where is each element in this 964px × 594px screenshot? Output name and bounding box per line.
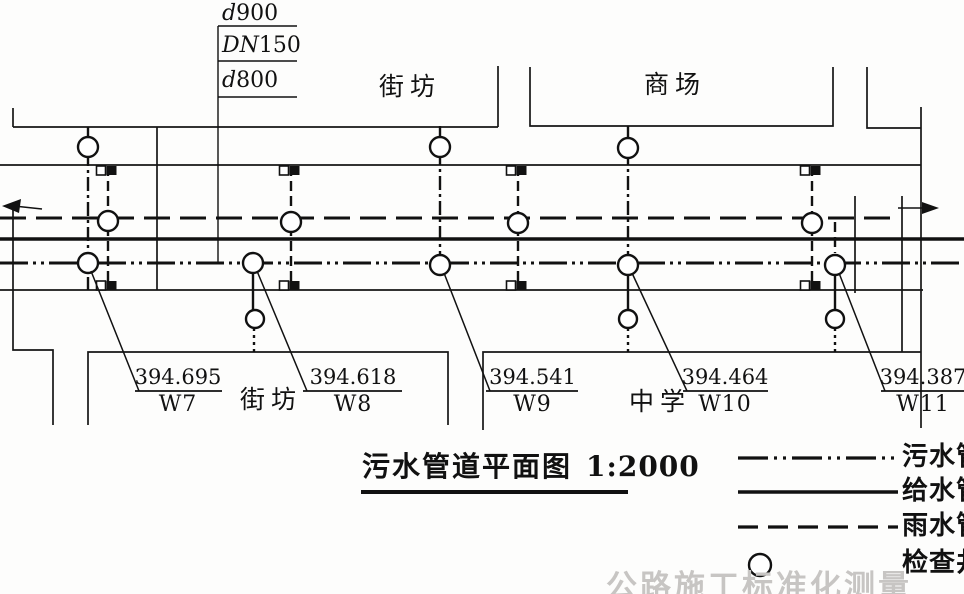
manhole-w10-icon [618,255,638,275]
manhole-icon [619,310,637,328]
manhole-w11-icon [825,255,845,275]
manhole-icon [78,137,98,157]
manhole-icon [802,213,822,233]
well-elevation-w8: 394.618 [303,367,403,388]
diameter-label-rain: d900 [222,3,278,25]
flow-arrow-left-icon [2,199,21,213]
block-label-neighborhood-top: 街坊 [379,74,441,99]
diameter-label-sewage: d800 [222,70,278,92]
diameter-prefix: d [222,1,236,26]
well-name-w8: W8 [303,394,403,416]
legend-symbols [738,458,898,576]
drawing-title-text: 污水管道平面图 [362,450,572,483]
manhole-icon [618,138,638,158]
well-elevation-w11: 394.387 [879,367,964,388]
well-name-w9: W9 [486,394,579,416]
well-elevation-w7: 394.695 [133,367,223,388]
plan-drawing [0,0,964,594]
manhole-w7-icon [78,253,98,273]
flow-arrow-right-icon [922,202,939,214]
legend-label-water: 给水管 [902,478,964,504]
diameter-value: 150 [259,33,301,58]
well-name-w11: W11 [879,394,964,416]
manhole-icon [281,212,301,232]
block-label-mall: 商场 [644,72,706,97]
manhole-icon [508,213,528,233]
diameter-label-water: DN150 [222,35,301,57]
diameter-value: 900 [236,1,278,26]
diameter-prefix: d [222,68,236,93]
diameter-prefix: DN [222,33,259,58]
manhole-w9-icon [430,255,450,275]
well-elevation-w9: 394.541 [486,367,579,388]
manhole-icon [826,310,844,328]
well-name-w10: W10 [681,394,769,416]
manhole-icon [246,310,264,328]
well-name-w7: W7 [133,394,223,416]
bottom-left-corner-outline [13,203,53,425]
manhole-icon [430,137,450,157]
flow-arrows [2,199,939,214]
diameter-value: 800 [236,68,278,93]
block-label-neighborhood-bottom: 街坊 [240,387,302,412]
legend-label-sewage: 污水管 [902,444,964,470]
rain-inlets [97,166,821,290]
sewage-pipeline-plan: d900 DN150 d800 街坊 商场 街坊 中学 394.695 W7 3… [0,0,964,594]
legend-label-rain: 雨水管 [902,513,964,539]
drawing-scale: 1:2000 [586,450,700,483]
manhole-icon [98,211,118,231]
watermark-text: 公路施工标准化测量 [606,572,912,594]
drawing-title: 污水管道平面图1:2000 [362,453,700,481]
well-elevation-w10: 394.464 [681,367,769,388]
top-right-corner-outline [867,67,921,128]
manhole-w8-icon [243,253,263,273]
